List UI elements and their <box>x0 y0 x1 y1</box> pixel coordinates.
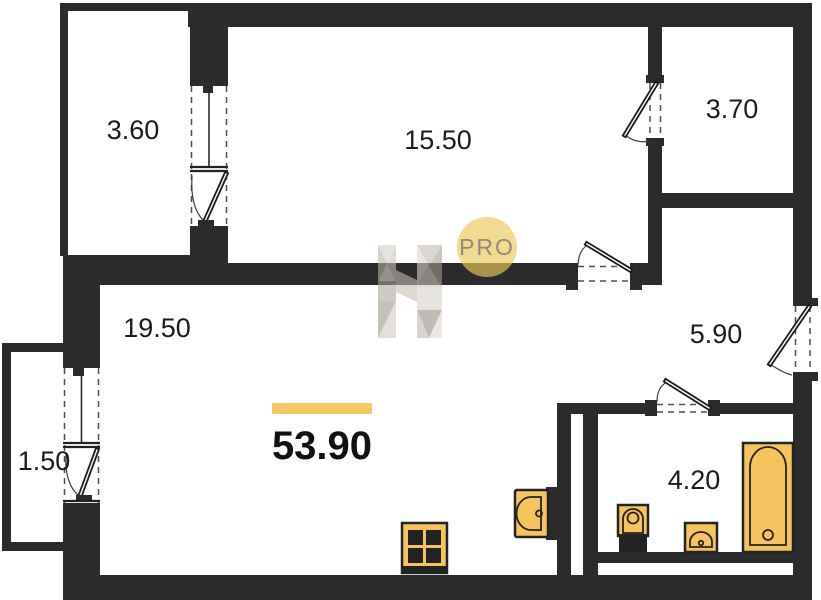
room-area-label-balcony-left: 1.50 <box>18 446 71 476</box>
wall-segment <box>630 263 642 290</box>
wall-segment <box>60 3 190 11</box>
total-area-label: 53.90 <box>272 424 372 468</box>
window-handle <box>73 368 84 376</box>
floor-plan: 53.90 3.60 15.50 3.70 19.50 5.90 1.50 4.… <box>0 0 821 600</box>
wall-segment <box>648 146 662 285</box>
floor-plan-canvas: 53.90 3.60 15.50 3.70 19.50 5.90 1.50 4.… <box>0 0 821 600</box>
door-hinge <box>198 220 214 227</box>
wall-segment <box>557 403 647 414</box>
room-area-label-bedroom: 15.50 <box>404 125 472 155</box>
wall-segment <box>646 138 664 146</box>
wall-segment <box>793 381 812 600</box>
room-area-label-wardrobe: 3.70 <box>706 94 759 124</box>
wall-segment <box>720 403 793 414</box>
wall-segment <box>583 414 598 577</box>
wall-segment <box>63 285 100 358</box>
wall-segment <box>2 343 11 551</box>
wall-segment <box>190 27 228 86</box>
wall-segment <box>188 3 812 27</box>
washbasin-icon <box>685 523 717 552</box>
wall-segment <box>648 27 662 77</box>
wall-segment <box>662 193 793 208</box>
room-area-label-balcony-top: 3.60 <box>107 115 160 145</box>
wall-segment <box>63 358 100 368</box>
wall-segment <box>2 343 63 352</box>
window-handle <box>203 86 213 93</box>
kitchen-sink-icon <box>515 490 548 537</box>
pro-badge-label: PRO <box>459 234 515 260</box>
wall-segment <box>793 298 818 306</box>
toilet-tank <box>619 534 647 552</box>
wall-segment <box>2 542 63 551</box>
room-area-label-hallway: 5.90 <box>690 319 743 349</box>
room-area-label-living: 19.50 <box>123 313 191 343</box>
wall-segment <box>190 226 228 263</box>
wall-segment <box>598 552 793 563</box>
toilet-icon <box>618 505 648 552</box>
wall-segment <box>557 403 571 577</box>
wall-segment <box>793 27 812 298</box>
wall-segment <box>566 263 578 290</box>
pro-badge: PRO <box>457 217 517 277</box>
wall-segment <box>645 400 657 416</box>
wall-segment <box>793 372 818 381</box>
wall-segment <box>63 255 190 285</box>
wall-segment <box>63 575 812 600</box>
stove-icon <box>402 523 447 573</box>
total-area-accent-bar <box>272 403 372 414</box>
background <box>0 0 821 600</box>
bathtub-icon <box>743 443 793 552</box>
room-area-label-bathroom: 4.20 <box>668 465 721 495</box>
wall-segment <box>60 3 68 256</box>
